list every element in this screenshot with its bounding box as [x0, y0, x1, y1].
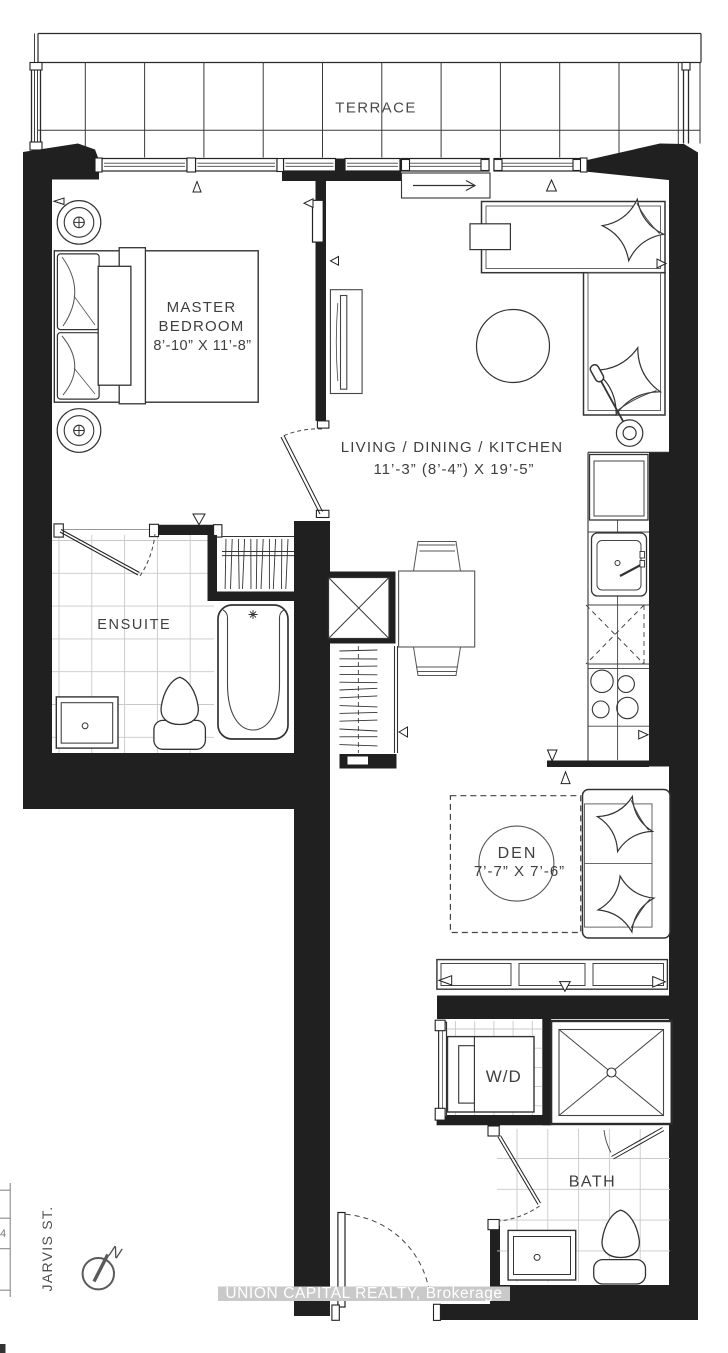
svg-text:W/D: W/D — [486, 1067, 522, 1086]
svg-text:DEN: DEN — [498, 845, 538, 862]
svg-text:7’-7” X 7’-6”: 7’-7” X 7’-6” — [474, 863, 565, 880]
svg-text:MASTER: MASTER — [167, 299, 237, 316]
svg-text:TERRACE: TERRACE — [335, 100, 416, 117]
svg-text:UNION CAPITAL REALTY, Brokerag: UNION CAPITAL REALTY, Brokerage — [225, 1285, 502, 1302]
svg-text:ENSUITE: ENSUITE — [97, 617, 171, 633]
svg-text:BEDROOM: BEDROOM — [159, 318, 245, 335]
svg-text:BATH: BATH — [569, 1174, 616, 1191]
svg-text:JARVIS ST.: JARVIS ST. — [39, 1206, 55, 1292]
svg-text:11’-3” (8’-4”) X 19’-5”: 11’-3” (8’-4”) X 19’-5” — [373, 461, 534, 478]
svg-text:4: 4 — [0, 1228, 6, 1240]
svg-text:8’-10” X 11’-8”: 8’-10” X 11’-8” — [153, 338, 251, 354]
svg-text:LIVING / DINING / KITCHEN: LIVING / DINING / KITCHEN — [341, 439, 564, 456]
